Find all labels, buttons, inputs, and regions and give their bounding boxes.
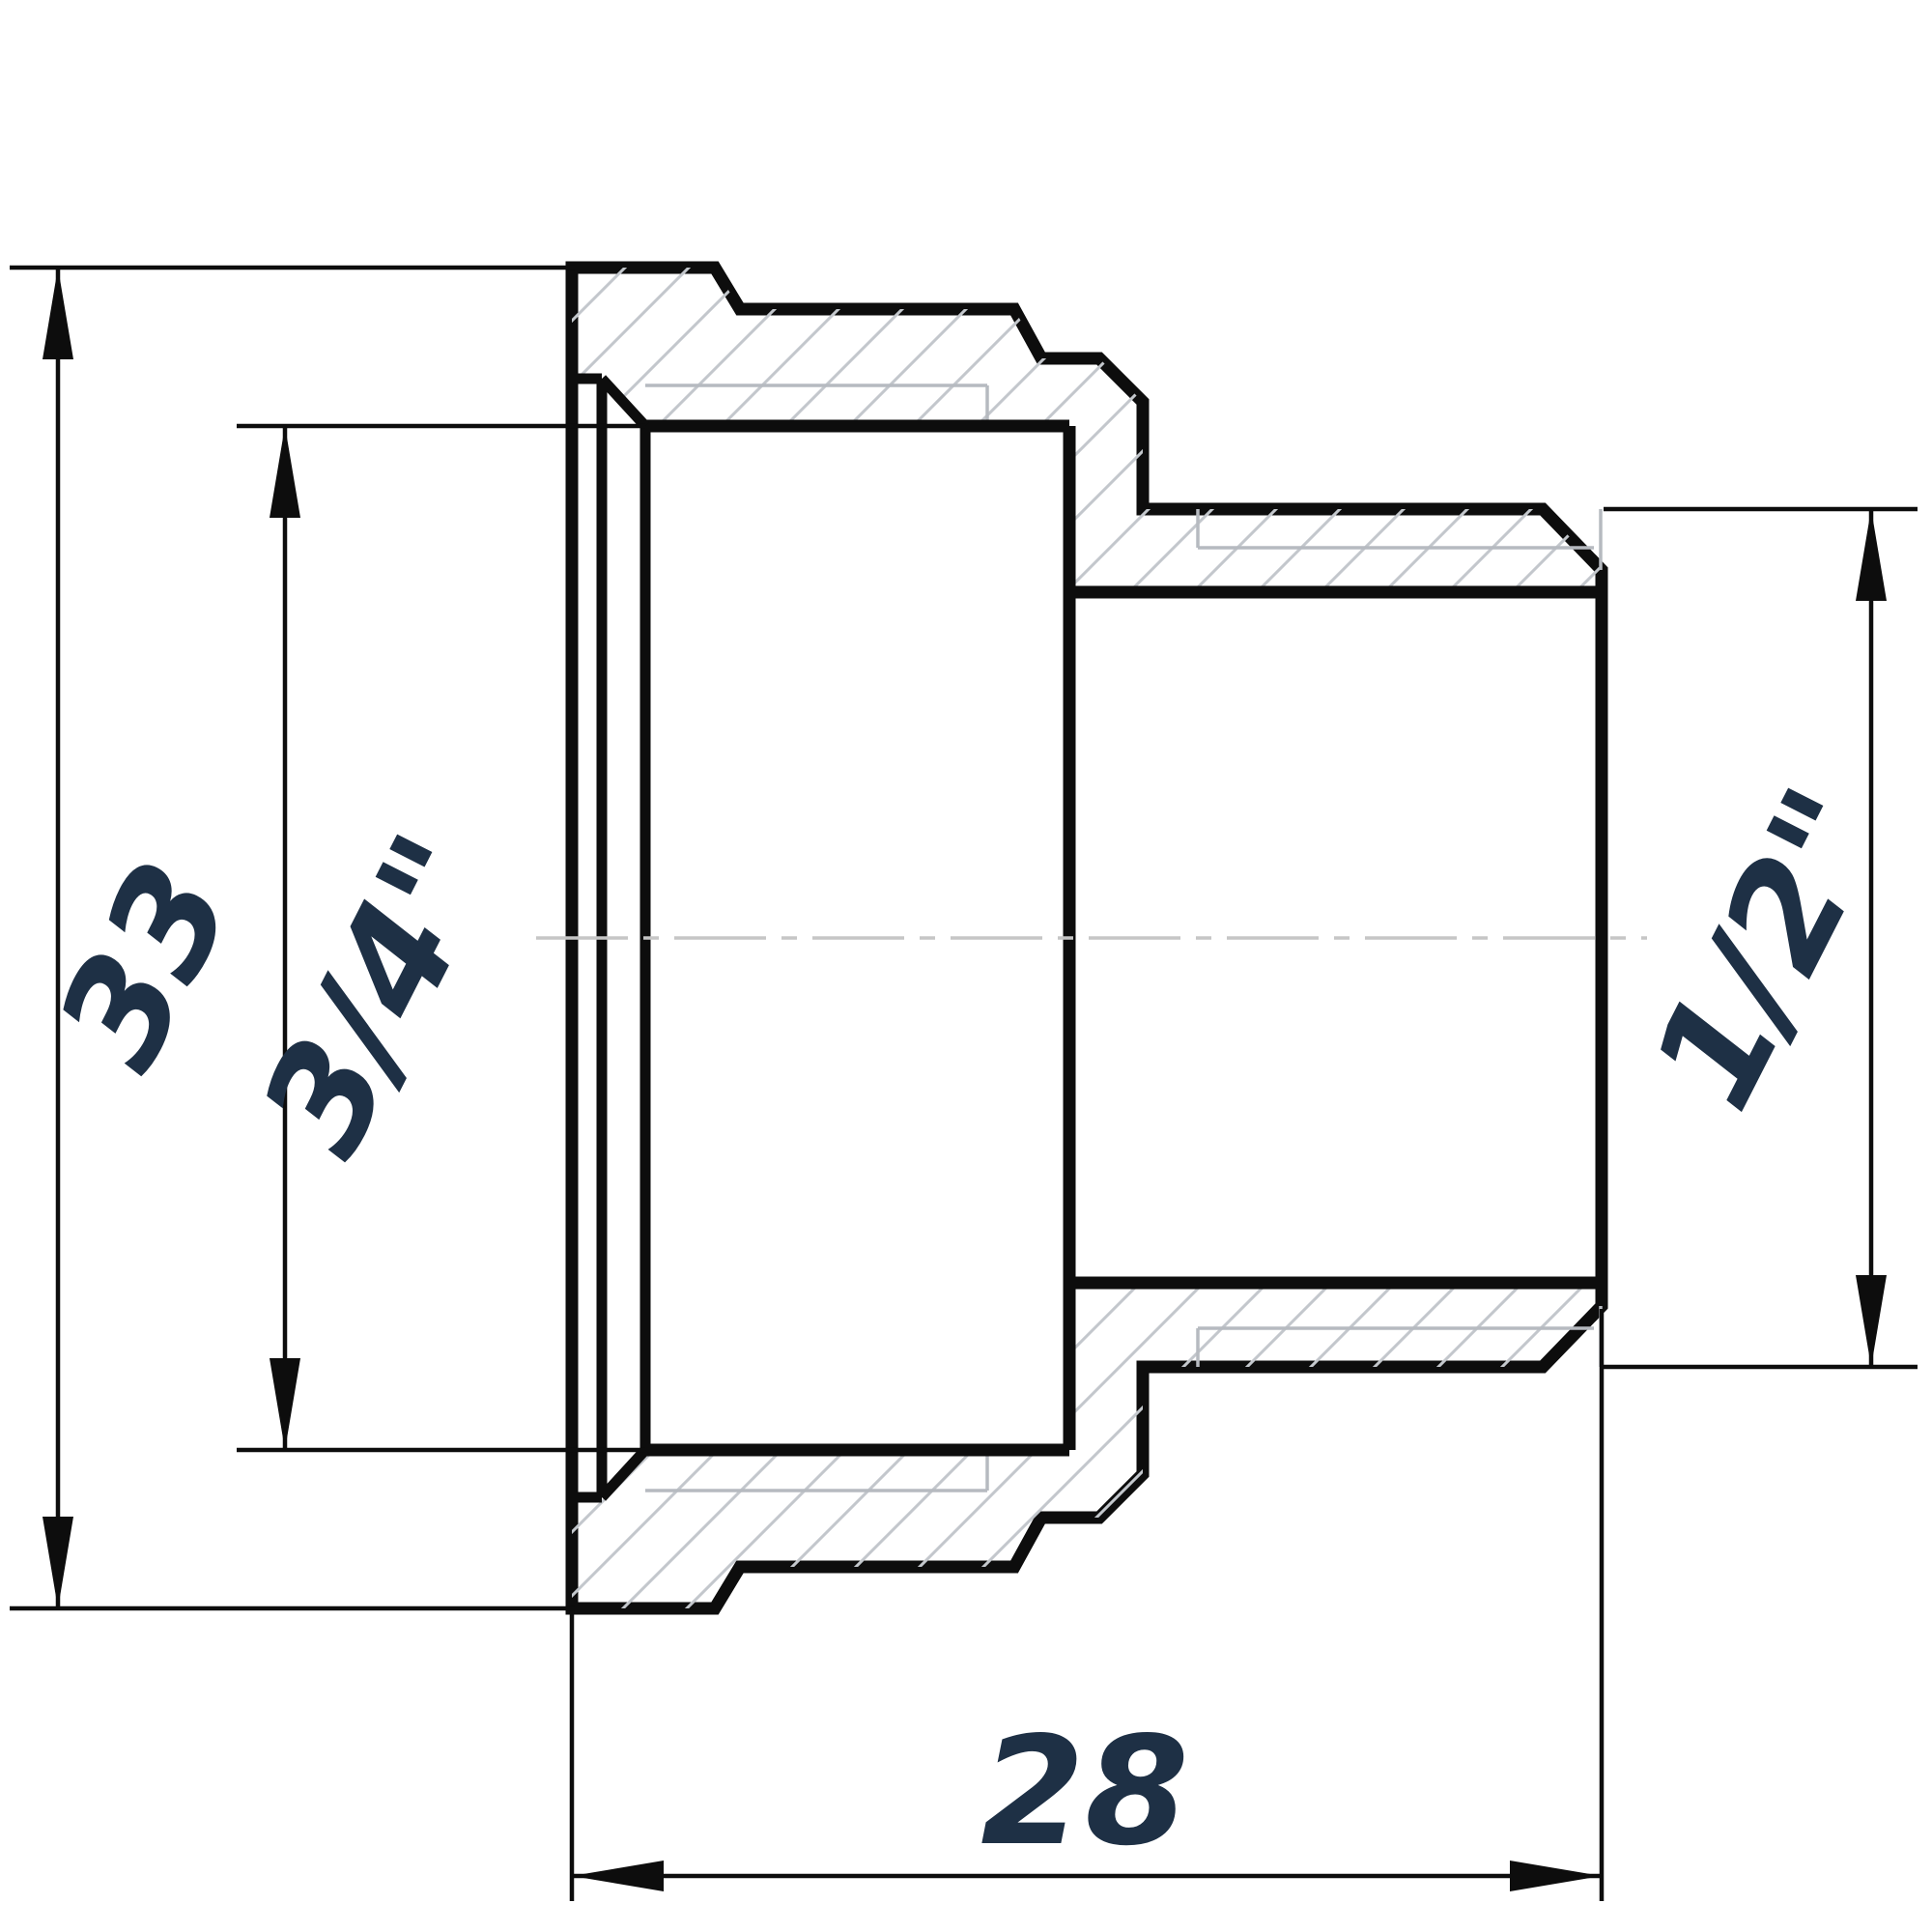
- arrowhead-up: [1856, 509, 1887, 601]
- dimension-label-1-2: 1/2": [1620, 763, 1919, 1133]
- arrowhead-left: [572, 1861, 664, 1891]
- arrowhead-up: [43, 268, 73, 359]
- arrowhead-up: [270, 426, 300, 518]
- fitting-outline: [536, 268, 1647, 1608]
- arrowhead-right: [1510, 1861, 1602, 1891]
- drawing-page: 33 3/4" 1/2" 28: [0, 0, 1932, 1932]
- dimension-label-28: 28: [980, 1704, 1189, 1879]
- dimension-1-2: 1/2": [1604, 509, 1919, 1367]
- arrowhead-down: [1856, 1275, 1887, 1367]
- technical-drawing-canvas: 33 3/4" 1/2" 28: [0, 0, 1932, 1932]
- arrowhead-down: [270, 1358, 300, 1450]
- arrowhead-down: [43, 1517, 73, 1608]
- dimension-label-33: 33: [25, 838, 267, 1094]
- dimension-label-3-4: 3/4": [229, 810, 528, 1179]
